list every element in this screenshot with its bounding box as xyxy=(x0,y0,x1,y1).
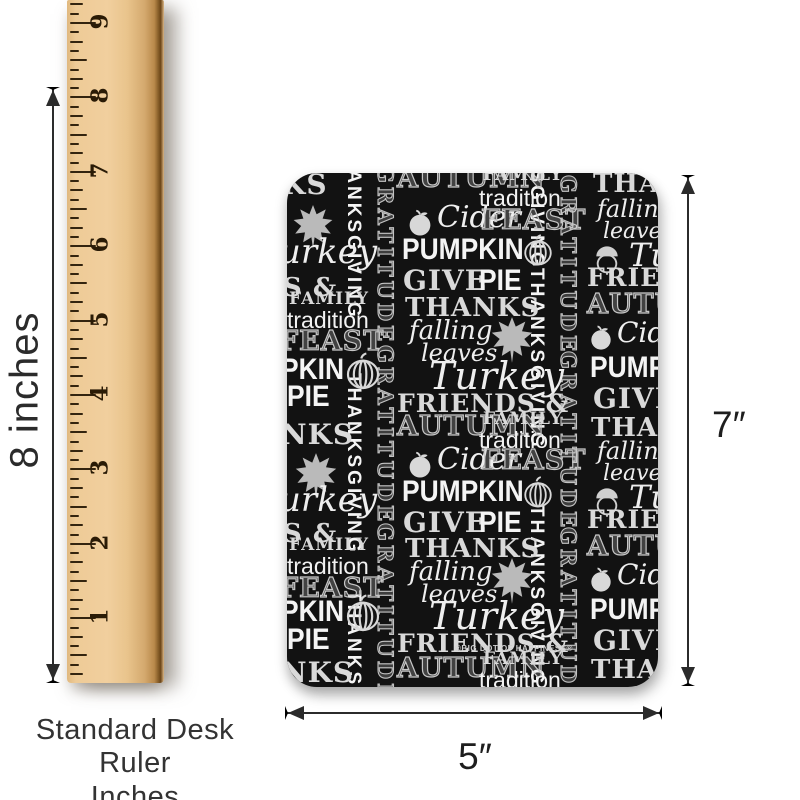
ruler-tick xyxy=(70,152,83,154)
arrow-down-icon xyxy=(681,667,695,686)
ruler-tick xyxy=(70,50,79,52)
pattern-word: FAMILY xyxy=(483,651,563,668)
arrow-right-icon xyxy=(643,706,662,720)
ruler-tick xyxy=(70,366,79,368)
pattern-word: FEAST xyxy=(481,447,586,474)
pattern-word: AUTUMN xyxy=(587,533,658,560)
ruler-tick xyxy=(70,78,83,80)
ruler-number: 3 xyxy=(89,453,112,483)
pattern-word: THAN xyxy=(593,173,658,197)
ruler-tick xyxy=(70,413,83,415)
ruler-number: 9 xyxy=(89,7,112,37)
pattern-word: THANKSGIVING xyxy=(344,373,363,555)
pumpkin-icon xyxy=(521,233,555,267)
ruler-tick xyxy=(70,496,79,498)
pattern-word: GIVE xyxy=(593,385,658,413)
wooden-ruler: 987654321 xyxy=(67,0,164,683)
ruler-tick xyxy=(70,41,83,43)
ruler-tick xyxy=(70,357,87,359)
pattern-word: FAMILY xyxy=(289,291,369,308)
ruler-tick xyxy=(70,124,79,126)
ruler-tick xyxy=(70,3,83,5)
ruler-tick xyxy=(70,608,79,610)
ruler-caption-line2: Inches xyxy=(0,781,270,800)
pattern-word: GRATITUDE xyxy=(558,175,579,355)
ruler-tick xyxy=(70,654,87,656)
ruler-tick xyxy=(70,627,79,629)
ruler-tick xyxy=(70,255,79,257)
pattern-word: NKS xyxy=(287,659,354,687)
pattern-word: GIVE xyxy=(593,627,658,655)
ruler-tick xyxy=(70,59,87,61)
pattern-word: FAMILY xyxy=(289,537,369,554)
product-dimension-scene: 987654321 8 inches THANKSGIVINGTHANKSGIV… xyxy=(0,0,800,800)
pattern-word: FRIENDS xyxy=(587,265,658,290)
ruler-tick xyxy=(70,143,79,145)
ruler-tick xyxy=(70,189,83,191)
ruler-tick xyxy=(70,589,79,591)
ruler-tick xyxy=(70,208,87,210)
card-width-label: 5″ xyxy=(440,736,510,778)
ruler-number: 6 xyxy=(89,230,112,260)
apple-icon xyxy=(587,323,615,351)
ruler-tick xyxy=(70,69,79,71)
pattern-word: Cider xyxy=(617,319,658,347)
ruler-caption-line1: Standard Desk Ruler xyxy=(0,714,270,781)
ruler-height-dimension-arrow xyxy=(52,88,54,682)
ruler-tick xyxy=(70,134,87,136)
arrow-up-icon xyxy=(46,87,60,106)
ruler-tick xyxy=(70,487,83,489)
pumpkin-icon xyxy=(343,593,383,633)
pattern-word: KS xyxy=(287,173,328,199)
ruler-tick xyxy=(70,348,79,350)
ruler-tick xyxy=(70,636,83,638)
ruler-caption: Standard Desk Ruler Inches xyxy=(0,714,270,800)
ruler-tick xyxy=(70,552,79,554)
ruler-tick xyxy=(70,162,79,164)
ruler-tick xyxy=(70,199,79,201)
card-height-label: 7″ xyxy=(712,404,746,446)
pattern-word: FEAST xyxy=(481,207,586,234)
ruler-tick xyxy=(70,338,83,340)
ruler-tick xyxy=(70,459,79,461)
ruler-tick xyxy=(70,236,79,238)
ruler-tick xyxy=(70,31,79,33)
apple-icon xyxy=(587,565,615,593)
ruler-tick xyxy=(70,506,87,508)
pattern-word: PIE xyxy=(287,382,330,412)
pattern-word: NKS xyxy=(287,421,354,449)
ruler-tick xyxy=(70,301,83,303)
pattern-word: urkey xyxy=(287,235,377,269)
ruler-tick xyxy=(70,599,83,601)
pattern-word: PUMPKIN xyxy=(402,235,524,265)
pattern-word: GIVE xyxy=(403,267,487,295)
pattern-word: PIE xyxy=(479,266,522,296)
ruler-tick xyxy=(70,375,83,377)
pattern-word: falling xyxy=(597,439,658,463)
pattern-word: FRIENDS xyxy=(587,507,658,532)
pumpkin-icon xyxy=(521,475,555,509)
ruler-number: 1 xyxy=(89,602,112,632)
ruler-tick xyxy=(70,478,79,480)
pattern-word: Cider xyxy=(617,561,658,589)
ruler-number: 5 xyxy=(89,304,112,334)
ruler-tick xyxy=(70,329,79,331)
thanksgiving-pattern-card: THANKSGIVINGTHANKSGIVINGTHANKSGIVINGGRAT… xyxy=(287,173,658,687)
ruler-tick xyxy=(70,282,87,284)
pattern-word: PUMP xyxy=(590,353,658,383)
pattern-word: FAMILY xyxy=(483,411,563,428)
ruler-tick xyxy=(70,664,79,666)
card-height-dimension-arrow xyxy=(687,176,689,685)
ruler-tick xyxy=(70,441,79,443)
pattern-word: urkey xyxy=(287,483,377,517)
ruler-tick xyxy=(70,534,79,536)
ruler-tick xyxy=(70,673,83,675)
ruler-tick xyxy=(70,561,83,563)
pattern-word: FAMILY xyxy=(483,173,563,184)
arrow-down-icon xyxy=(46,664,60,683)
ruler-tick xyxy=(70,571,79,573)
ruler-tick xyxy=(70,450,83,452)
ruler-number: 4 xyxy=(89,379,112,409)
ruler-tick xyxy=(70,431,87,433)
pattern-word: tradition xyxy=(479,669,561,687)
pattern-word: GIVE xyxy=(403,509,487,537)
pumpkin-icon xyxy=(343,351,383,391)
ruler-tick xyxy=(70,264,83,266)
ruler-tick xyxy=(70,310,79,312)
ruler-tick xyxy=(70,422,79,424)
ruler-tick xyxy=(70,227,83,229)
pattern-word: PUMPKIN xyxy=(402,477,524,507)
ruler-tick xyxy=(70,13,79,15)
ruler-tick xyxy=(70,580,87,582)
ruler-tick xyxy=(70,403,79,405)
pattern-word: AUTUMN xyxy=(587,291,658,318)
ruler-height-label: 8 inches xyxy=(3,312,48,469)
ruler-tick xyxy=(70,385,79,387)
ruler-tick xyxy=(70,180,79,182)
ruler-number: 7 xyxy=(89,155,112,185)
ruler-tick xyxy=(70,292,79,294)
ruler-tick xyxy=(70,645,79,647)
ruler-tick xyxy=(70,524,83,526)
pattern-word: THAN xyxy=(591,657,658,683)
arrow-up-icon xyxy=(681,175,695,194)
pattern-word: GRATITUDE xyxy=(375,173,396,345)
ruler-tick xyxy=(70,87,79,89)
arrow-left-icon xyxy=(285,706,304,720)
ruler-tick xyxy=(70,273,79,275)
ruler-tick xyxy=(70,106,79,108)
pattern-word: falling xyxy=(597,197,658,221)
ruler-number: 2 xyxy=(89,527,112,557)
ruler-number: 8 xyxy=(89,81,112,111)
pattern-word: PUMP xyxy=(590,595,658,625)
ruler-tick xyxy=(70,217,79,219)
pattern-word: PIE xyxy=(287,625,330,655)
card-width-dimension-arrow xyxy=(286,712,661,714)
ruler-tick xyxy=(70,115,83,117)
ruler-tick xyxy=(70,515,79,517)
